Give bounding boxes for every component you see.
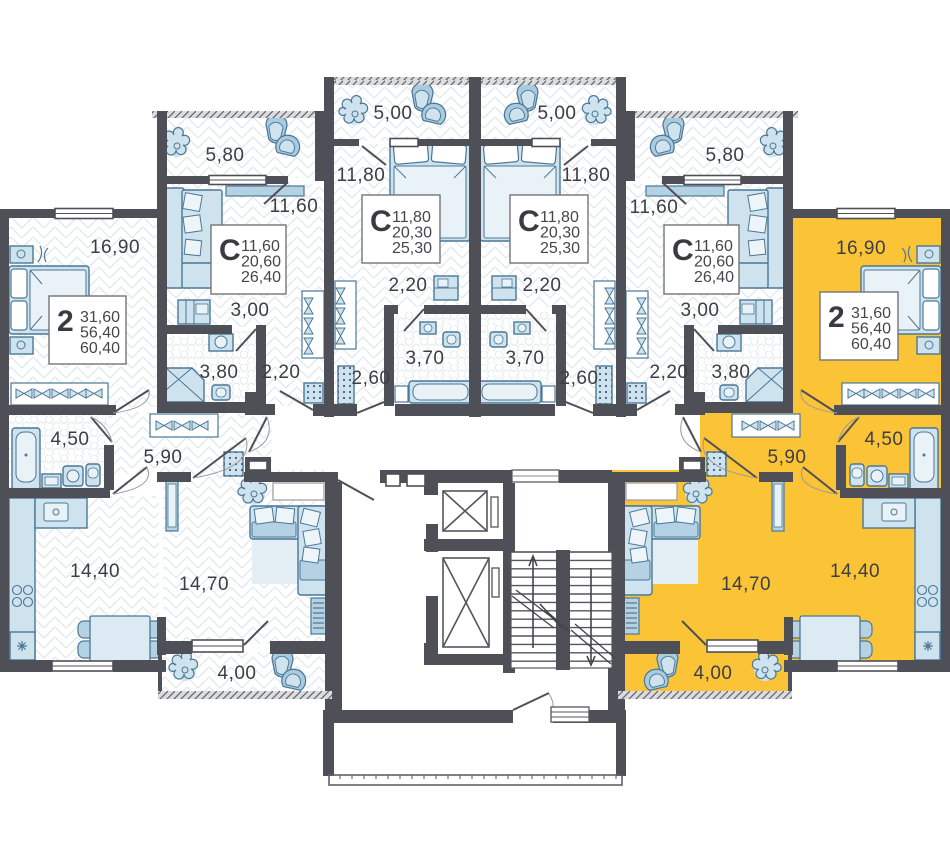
svg-text:5,80: 5,80	[706, 145, 745, 166]
svg-text:31,60: 31,60	[851, 305, 891, 322]
svg-text:11,60: 11,60	[694, 238, 733, 255]
svg-text:2,20: 2,20	[650, 362, 689, 383]
svg-text:3,00: 3,00	[681, 300, 720, 321]
svg-text:11,80: 11,80	[337, 165, 386, 186]
svg-text:26,40: 26,40	[694, 269, 734, 286]
svg-text:С: С	[370, 205, 392, 238]
svg-text:4,50: 4,50	[51, 429, 90, 450]
svg-text:5,90: 5,90	[144, 447, 183, 468]
svg-text:11,80: 11,80	[540, 209, 579, 226]
svg-text:11,60: 11,60	[630, 197, 679, 218]
svg-text:С: С	[672, 234, 694, 267]
svg-text:4,00: 4,00	[218, 663, 257, 684]
svg-text:11,60: 11,60	[241, 238, 280, 255]
svg-text:С: С	[518, 205, 540, 238]
svg-text:2: 2	[57, 305, 74, 338]
svg-text:2,20: 2,20	[262, 362, 301, 383]
svg-text:11,80: 11,80	[562, 165, 611, 186]
svg-text:2,60: 2,60	[560, 368, 599, 389]
svg-text:14,70: 14,70	[721, 574, 771, 595]
svg-text:20,30: 20,30	[392, 225, 432, 242]
svg-text:14,40: 14,40	[830, 561, 880, 582]
svg-text:3,00: 3,00	[231, 300, 270, 321]
svg-text:3,80: 3,80	[200, 362, 239, 383]
svg-text:3,70: 3,70	[506, 348, 545, 369]
svg-text:2: 2	[828, 301, 845, 334]
svg-text:2,20: 2,20	[523, 275, 562, 296]
svg-text:56,40: 56,40	[851, 321, 891, 338]
svg-text:20,60: 20,60	[694, 254, 734, 271]
svg-text:25,30: 25,30	[392, 240, 432, 257]
svg-text:5,00: 5,00	[538, 103, 577, 124]
svg-text:5,90: 5,90	[768, 447, 807, 468]
svg-text:60,40: 60,40	[851, 336, 891, 353]
svg-text:2,20: 2,20	[389, 275, 428, 296]
svg-text:26,40: 26,40	[241, 269, 281, 286]
svg-text:56,40: 56,40	[80, 325, 120, 342]
svg-text:3,70: 3,70	[406, 348, 445, 369]
svg-text:11,80: 11,80	[392, 209, 431, 226]
svg-text:14,40: 14,40	[70, 561, 120, 582]
svg-text:2,60: 2,60	[352, 368, 391, 389]
svg-text:60,40: 60,40	[80, 340, 120, 357]
svg-text:4,50: 4,50	[865, 429, 904, 450]
svg-text:16,90: 16,90	[90, 237, 140, 258]
svg-text:4,00: 4,00	[694, 663, 733, 684]
svg-text:25,30: 25,30	[540, 240, 580, 257]
svg-text:11,60: 11,60	[270, 196, 319, 217]
svg-text:20,30: 20,30	[540, 225, 580, 242]
svg-text:14,70: 14,70	[179, 574, 229, 595]
svg-text:16,90: 16,90	[836, 238, 886, 259]
svg-text:3,80: 3,80	[712, 362, 751, 383]
svg-text:5,00: 5,00	[374, 103, 413, 124]
svg-text:С: С	[219, 234, 241, 267]
svg-text:5,80: 5,80	[206, 145, 245, 166]
svg-text:31,60: 31,60	[80, 309, 120, 326]
svg-text:20,60: 20,60	[241, 254, 281, 271]
